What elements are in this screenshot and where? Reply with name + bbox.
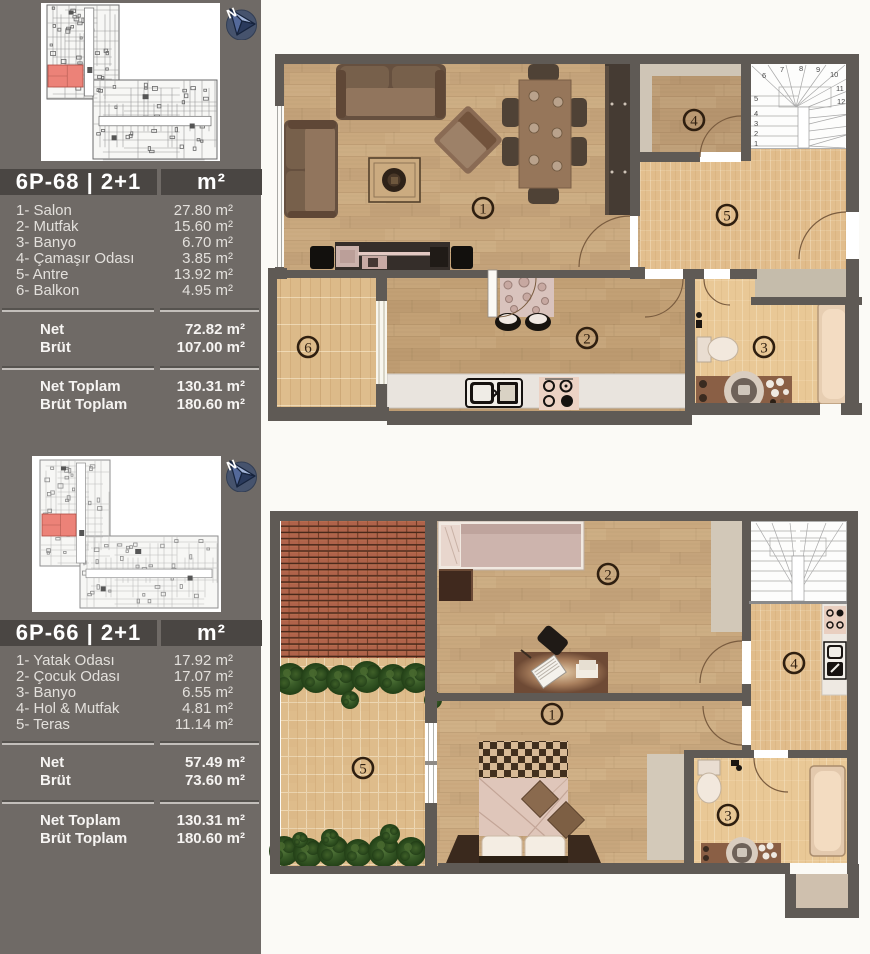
svg-text:1: 1 [548,708,556,724]
svg-text:2: 2 [604,568,612,584]
svg-text:5: 5 [723,209,731,225]
svg-text:4: 4 [754,109,758,118]
svg-text:3: 3 [724,809,732,825]
svg-text:4: 4 [790,657,798,673]
svg-text:8: 8 [799,64,803,73]
svg-text:5: 5 [359,762,367,778]
svg-text:10: 10 [830,70,838,79]
svg-text:1: 1 [754,139,758,148]
svg-text:3: 3 [760,341,768,357]
svg-text:6: 6 [762,71,766,80]
svg-text:3: 3 [754,119,758,128]
svg-text:7: 7 [780,65,784,74]
svg-text:4: 4 [690,114,698,130]
svg-text:2: 2 [754,129,758,138]
svg-text:2: 2 [583,332,591,348]
svg-text:5: 5 [754,94,758,103]
svg-text:6: 6 [304,341,312,357]
svg-text:12: 12 [837,97,845,106]
svg-text:9: 9 [816,65,820,74]
svg-text:11: 11 [836,84,844,93]
svg-text:1: 1 [479,202,487,218]
